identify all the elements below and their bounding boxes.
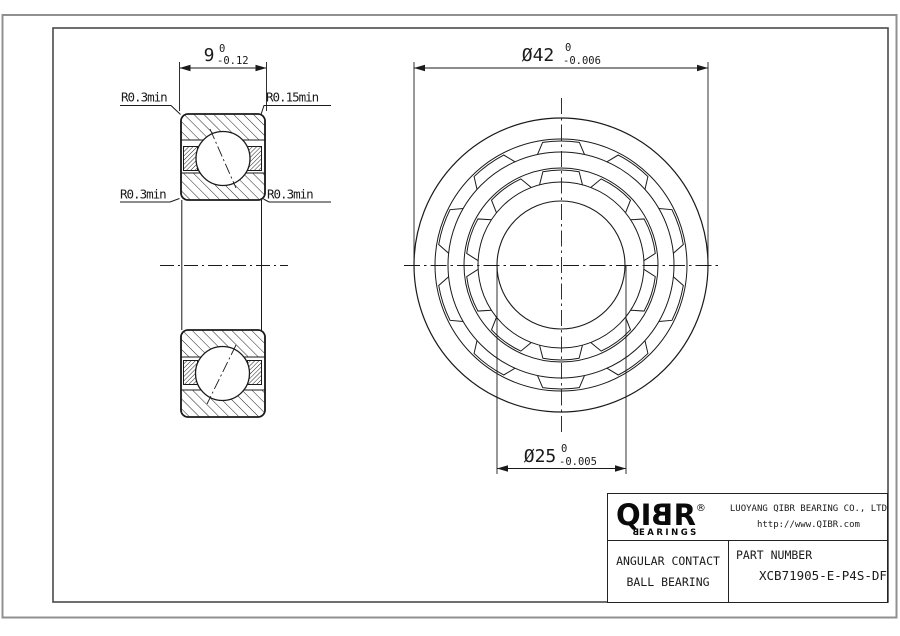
company-website[interactable]: http://www.QIBR.com [757,517,860,533]
bore-circle [497,201,625,329]
outer-ring-inner-circle [435,139,687,391]
radius-label-mid-right: R0.3min [267,187,313,202]
company-logo: QIBR® BEARINGS [608,494,730,540]
arrowhead [497,465,508,471]
arrowhead [180,65,191,71]
radius-label-top-left: R0.3min [121,90,167,105]
dim-bore-tol-upper: 0 [561,443,567,455]
cage-pocket [607,341,648,375]
dim-od-tol-lower: -0.006 [563,55,601,67]
ball [196,132,250,186]
dim-bore-value: Ø25 [524,446,557,467]
product-name: ANGULAR CONTACT BALL BEARING [608,541,729,602]
cage-pocket [474,341,515,375]
cage-pocket [540,170,583,185]
part-number-cell: PART NUMBER XCB71905-E-P4S-DF [729,541,887,602]
title-block: QIBR® BEARINGS LUOYANG QIBR BEARING CO.,… [607,493,888,603]
arrowhead [256,65,267,71]
arrowhead [414,65,425,71]
product-name-line2: BALL BEARING [626,572,709,593]
company-info: LUOYANG QIBR BEARING CO., LTD http://www… [730,494,887,540]
dim-outer-diameter: Ø42 0 -0.006 [414,42,708,266]
part-number-value: XCB71905-E-P4S-DF [759,568,887,583]
part-number-label: PART NUMBER [736,548,887,562]
logo-wordmark: QIBR® [616,496,730,528]
outer-diameter-circle [414,118,708,412]
title-block-top-row: QIBR® BEARINGS LUOYANG QIBR BEARING CO.,… [608,494,887,540]
cage-pocket [591,179,631,213]
cage-pocket [492,317,532,351]
section-top [180,113,266,201]
section-bottom [180,329,266,418]
cage-outer-circle [448,152,674,378]
inner-ring-shoulder-circle [478,182,644,348]
cage-pocket [591,317,631,351]
product-name-line1: ANGULAR CONTACT [616,551,720,572]
dim-od-tol-upper: 0 [565,42,571,54]
section-view [160,113,288,418]
company-name: LUOYANG QIBR BEARING CO., LTD [730,501,887,517]
front-view [404,98,718,434]
radius-label-mid-left: R0.3min [120,187,166,202]
cage-pockets [439,141,684,389]
arrowhead [697,65,708,71]
cage-pocket [607,155,648,189]
dim-width-value: 9 [204,45,215,66]
arrowhead [615,465,626,471]
ball [196,347,250,401]
dim-width-tol-upper: 0 [219,43,225,55]
cage-pocket [540,345,583,360]
cage-pocket [474,155,515,189]
dim-od-value: Ø42 [522,45,555,66]
title-block-bottom-row: ANGULAR CONTACT BALL BEARING PART NUMBER… [608,540,887,602]
radius-label-top-right: R0.15min [266,90,319,105]
dim-width-tol-lower: -0.12 [217,55,249,67]
dim-width: 9 0 -0.12 [180,43,267,111]
registered-mark-icon: ® [696,503,706,514]
dim-bore-tol-lower: -0.005 [559,456,597,468]
drawing-sheet: 9 0 -0.12 R0.3min R0.15min R0.3min R0.3m… [0,0,900,636]
cage-inner-circle [464,168,658,362]
cage-pocket [492,179,532,213]
